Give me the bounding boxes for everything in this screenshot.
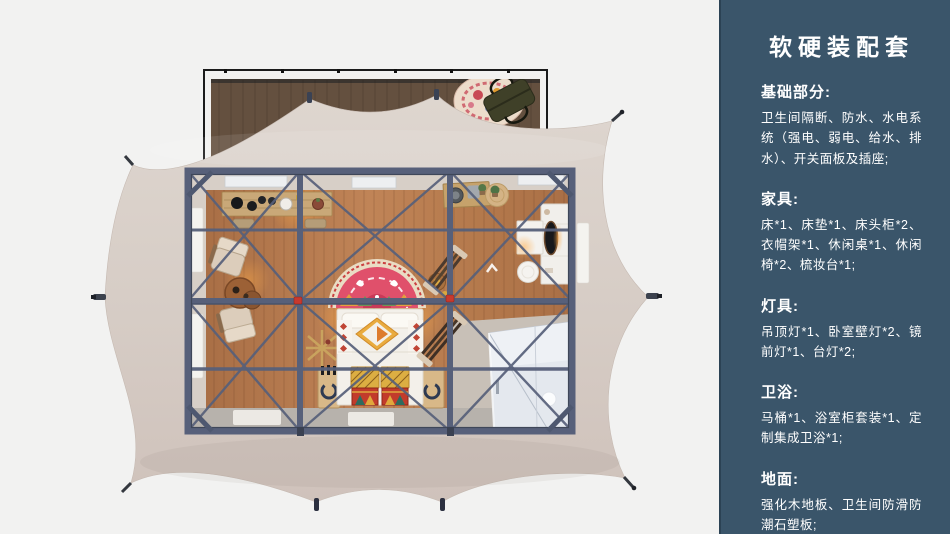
section-furniture: 家具: 床*1、床垫*1、床头柜*2、衣帽架*1、休闲桌*1、休闲椅*2、梳妆台… xyxy=(761,188,922,276)
storage-chest xyxy=(351,367,379,405)
section-body: 床*1、床垫*1、床头柜*2、衣帽架*1、休闲桌*1、休闲椅*2、梳妆台*1; xyxy=(761,215,922,276)
section-body: 马桶*1、浴室柜套装*1、定制集成卫浴*1; xyxy=(761,408,922,449)
section-heading: 灯具: xyxy=(761,295,922,316)
stool xyxy=(518,262,539,283)
section-flooring: 地面: 强化木地板、卫生间防滑防潮石塑板; xyxy=(761,468,922,534)
bed xyxy=(337,309,423,405)
slide-page: 软硬装配套 基础部分: 卫生间隔断、防水、水电系统（强电、弱电、给水、排水）、开… xyxy=(0,0,950,534)
toilet xyxy=(542,392,556,406)
section-basics: 基础部分: 卫生间隔断、防水、水电系统（强电、弱电、给水、排水）、开关面板及插座… xyxy=(761,81,922,169)
section-body: 强化木地板、卫生间防滑防潮石塑板; xyxy=(761,495,922,534)
bedside-stand xyxy=(420,369,444,408)
section-heading: 卫浴: xyxy=(761,381,922,402)
section-lighting: 灯具: 吊顶灯*1、卧室壁灯*2、镜前灯*1、台灯*2; xyxy=(761,295,922,363)
section-heading: 地面: xyxy=(761,468,922,489)
section-body: 吊顶灯*1、卧室壁灯*2、镜前灯*1、台灯*2; xyxy=(761,322,922,363)
section-heading: 家具: xyxy=(761,188,922,209)
storage-chest xyxy=(381,367,409,405)
section-heading: 基础部分: xyxy=(761,81,922,102)
panel-title: 软硬装配套 xyxy=(761,28,922,62)
woven-mat xyxy=(486,184,509,207)
section-bathroom: 卫浴: 马桶*1、浴室柜套装*1、定制集成卫浴*1; xyxy=(761,381,922,449)
tent-floorplan-illustration xyxy=(0,0,719,534)
section-body: 卫生间隔断、防水、水电系统（强电、弱电、给水、排水）、开关面板及插座; xyxy=(761,108,922,169)
spec-panel: 软硬装配套 基础部分: 卫生间隔断、防水、水电系统（强电、弱电、给水、排水）、开… xyxy=(719,0,950,534)
floorplan-svg xyxy=(0,0,719,534)
